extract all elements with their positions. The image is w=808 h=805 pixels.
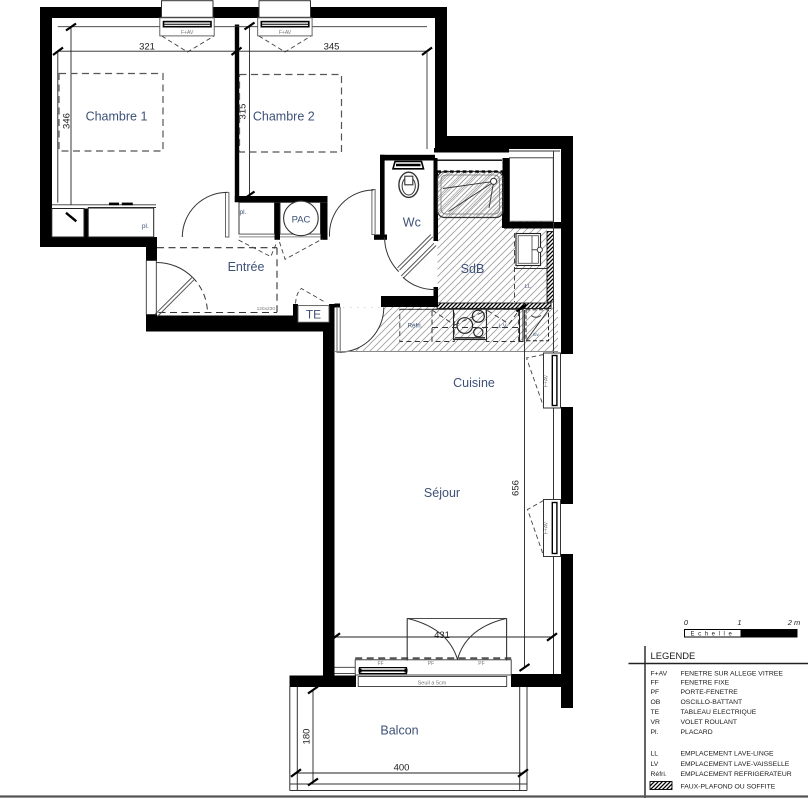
svg-text:F+AV: F+AV	[544, 374, 550, 387]
svg-text:F+AV: F+AV	[544, 521, 550, 534]
svg-text:VOLET ROULANT: VOLET ROULANT	[681, 719, 738, 726]
svg-text:LEGENDE: LEGENDE	[651, 650, 696, 661]
svg-text:OB: OB	[651, 699, 661, 706]
svg-text:Echelle: Echelle	[691, 631, 736, 637]
svg-text:TABLEAU ELECTRIQUE: TABLEAU ELECTRIQUE	[681, 709, 757, 716]
svg-text:LL: LL	[651, 751, 659, 758]
svg-text:2 m: 2 m	[787, 618, 801, 627]
svg-text:1: 1	[737, 618, 741, 627]
svg-text:FENETRE FIXE: FENETRE FIXE	[681, 680, 730, 687]
svg-text:321: 321	[139, 42, 155, 53]
svg-text:pl.: pl.	[142, 223, 149, 230]
svg-text:345: 345	[324, 42, 340, 53]
svg-text:TE: TE	[306, 308, 321, 322]
svg-text:PF: PF	[478, 661, 484, 667]
svg-text:Balcon: Balcon	[380, 724, 418, 738]
svg-text:PAC: PAC	[292, 214, 311, 225]
svg-text:346: 346	[62, 113, 73, 129]
svg-text:400: 400	[394, 763, 410, 774]
svg-text:Réfri.: Réfri.	[651, 771, 667, 778]
svg-text:PLACARD: PLACARD	[681, 729, 713, 736]
svg-text:FF: FF	[377, 661, 383, 667]
svg-text:OSCILLO-BATTANT: OSCILLO-BATTANT	[681, 699, 743, 706]
svg-text:Pl.: Pl.	[651, 729, 659, 736]
svg-text:Ev: Ev	[533, 332, 539, 338]
svg-text:PF: PF	[651, 689, 660, 696]
svg-text:F+AV: F+AV	[651, 671, 668, 678]
svg-text:LV: LV	[651, 761, 659, 768]
svg-text:Séjour: Séjour	[424, 486, 460, 500]
svg-text:F+AV: F+AV	[279, 30, 292, 36]
svg-text:180: 180	[302, 729, 313, 745]
svg-text:EMPLACEMENT LAVE-VAISSELLE: EMPLACEMENT LAVE-VAISSELLE	[681, 761, 790, 768]
svg-text:LL: LL	[525, 284, 531, 290]
svg-text:FAUX-PLAFOND OU SOFFITE: FAUX-PLAFOND OU SOFFITE	[681, 784, 776, 791]
svg-text:VR: VR	[651, 719, 661, 726]
svg-text:FENETRE SUR ALLEGE VITREE: FENETRE SUR ALLEGE VITREE	[681, 671, 784, 678]
svg-text:120x230: 120x230	[257, 306, 276, 312]
svg-text:Seuil a 5cm: Seuil a 5cm	[418, 680, 447, 686]
svg-text:Cuisine: Cuisine	[453, 376, 495, 390]
svg-text:Entrée: Entrée	[228, 260, 265, 274]
svg-text:PF: PF	[428, 661, 434, 667]
svg-text:EMPLACEMENT REFRIGERATEUR: EMPLACEMENT REFRIGERATEUR	[681, 771, 792, 778]
svg-text:PORTE-FENETRE: PORTE-FENETRE	[681, 689, 739, 696]
svg-text:TE: TE	[651, 709, 660, 716]
svg-text:SdB: SdB	[461, 262, 485, 276]
svg-text:L V: L V	[498, 324, 506, 330]
svg-text:656: 656	[511, 480, 522, 496]
svg-text:F+AV: F+AV	[181, 30, 194, 36]
svg-text:Chambre 1: Chambre 1	[86, 110, 148, 124]
svg-text:Réfri.: Réfri.	[408, 323, 423, 330]
svg-text:Wc: Wc	[403, 216, 421, 230]
svg-text:EMPLACEMENT LAVE-LINGE: EMPLACEMENT LAVE-LINGE	[681, 751, 775, 758]
svg-text:pl.: pl.	[240, 209, 247, 216]
svg-text:FF: FF	[651, 680, 659, 687]
svg-text:Chambre 2: Chambre 2	[253, 110, 315, 124]
